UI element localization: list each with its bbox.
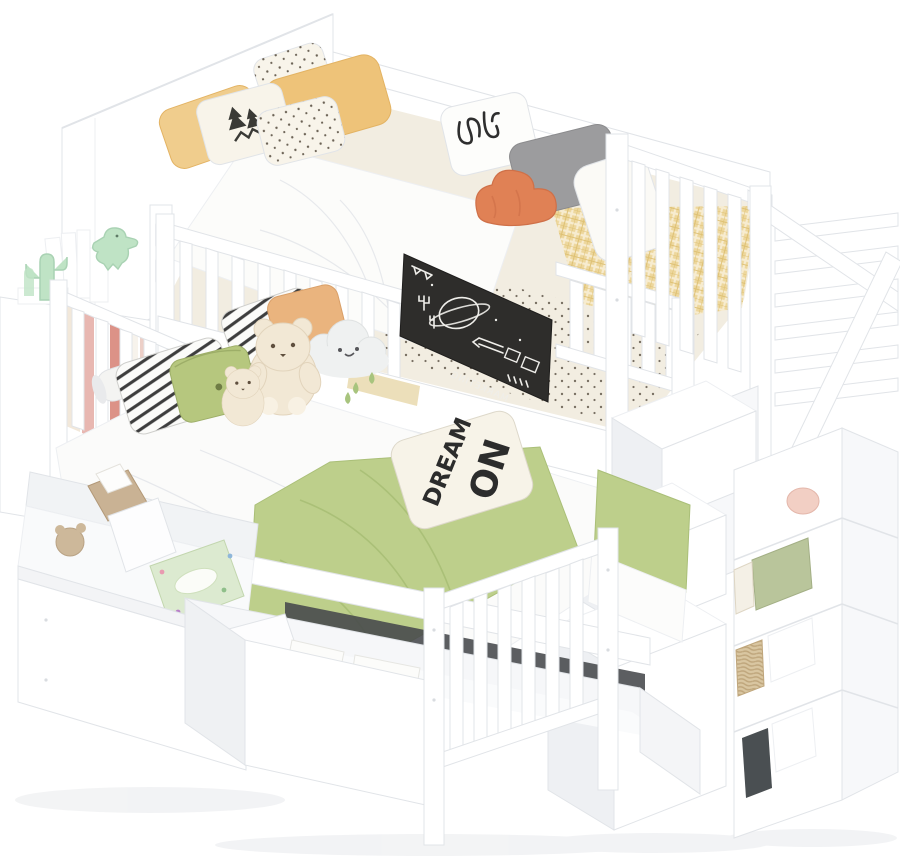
bunk-bed-scene: MARKETING (0, 0, 900, 856)
cubby-woven-box (734, 562, 754, 614)
cubby-basket (736, 640, 764, 696)
teddy-bear-small (222, 366, 264, 426)
footboard-post-rear (598, 528, 618, 790)
product-image: MARKETING (0, 0, 900, 856)
cubby-pink-cloth (787, 488, 819, 514)
storage-cubby-column (734, 428, 898, 838)
cubby-dark-book (742, 728, 772, 798)
footboard-post-front (424, 588, 444, 845)
